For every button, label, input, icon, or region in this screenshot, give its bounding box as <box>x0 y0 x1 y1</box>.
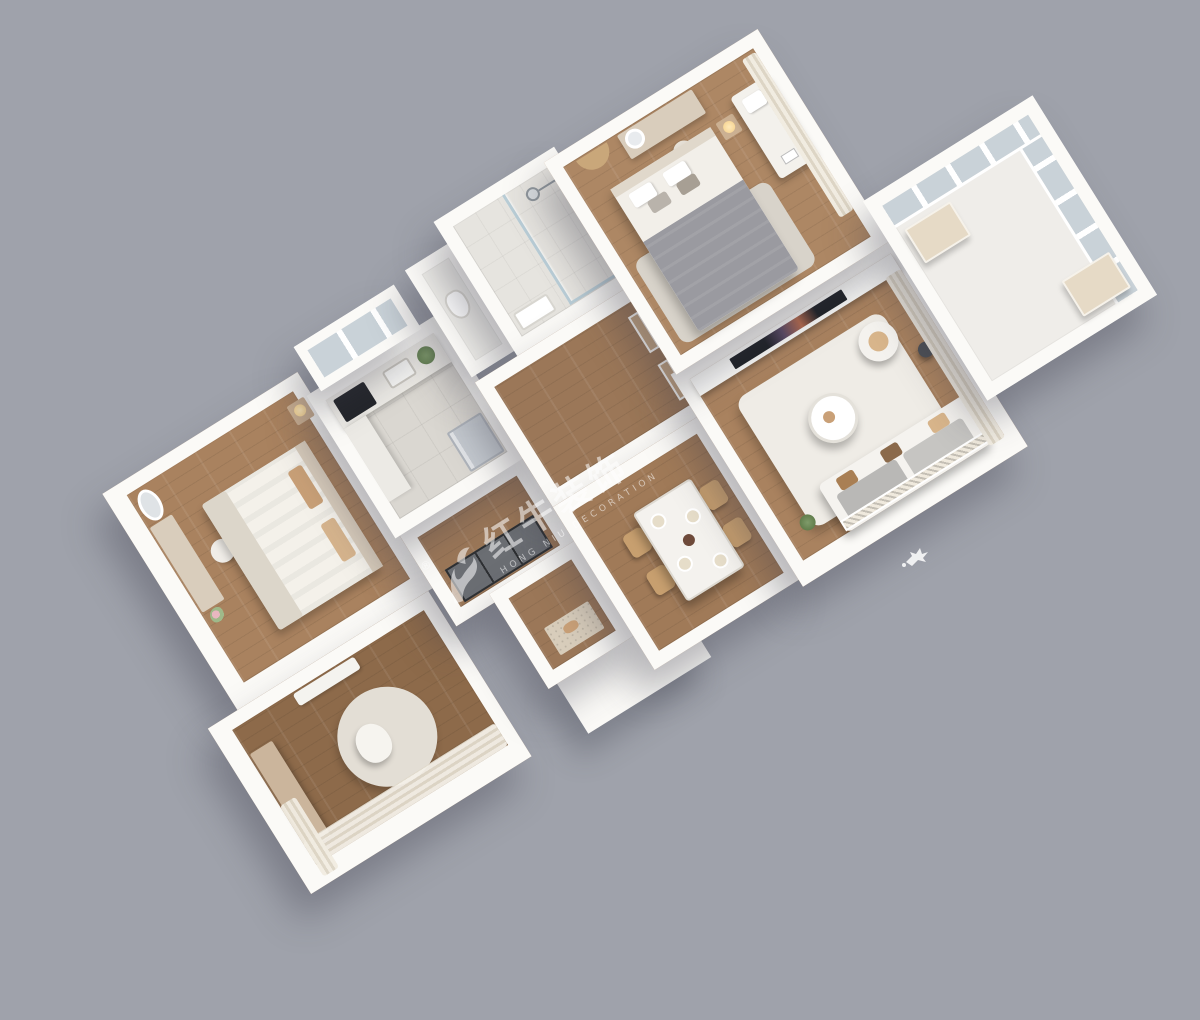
toilet <box>441 286 476 323</box>
place-setting1 <box>647 510 669 532</box>
shower-glass-partition <box>502 194 572 304</box>
bath-vanity <box>512 293 557 331</box>
sofa-pillow2 <box>879 441 903 463</box>
place-setting3 <box>674 553 696 575</box>
teapot <box>681 532 698 549</box>
place-setting2 <box>682 505 704 527</box>
balcony-cabinet2 <box>1061 252 1131 317</box>
floor-plan-group: ® 红牛装饰 HONG NIU DECORATION <box>0 0 1200 1020</box>
background-speck <box>896 538 936 570</box>
render-canvas: { "scene": { "kind": "isometric 3D apart… <box>0 0 1200 900</box>
place-setting4 <box>709 549 731 571</box>
refrigerator <box>447 412 505 472</box>
window-seat-book <box>780 148 799 165</box>
dressing-table <box>150 514 225 613</box>
balcony-glazing-top <box>882 115 1042 228</box>
crescent-wall-art <box>576 142 616 176</box>
